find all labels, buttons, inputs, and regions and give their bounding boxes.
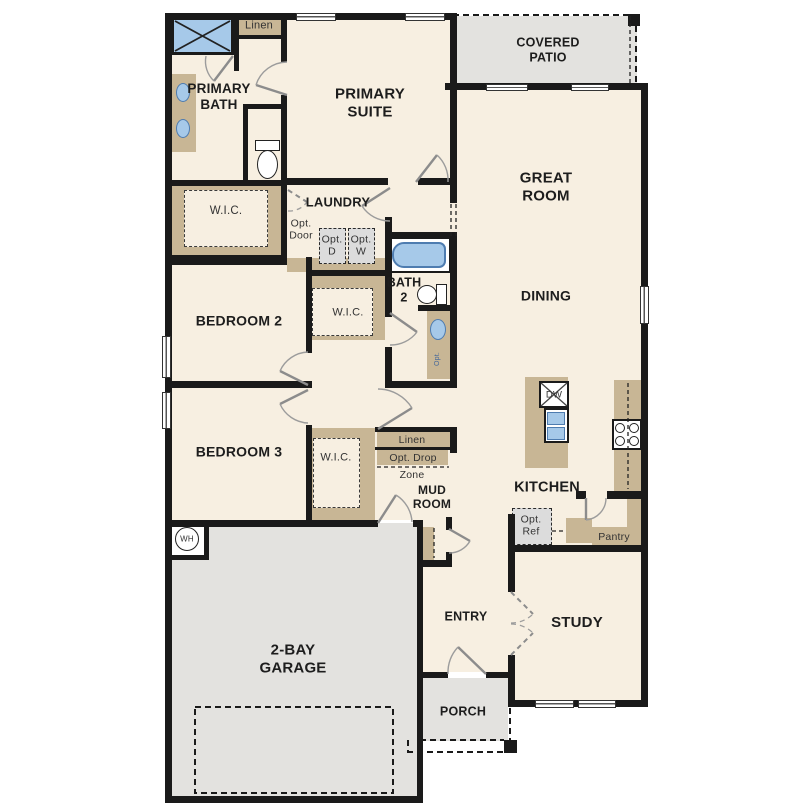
closet-label-wic-bedroom3: W.I.C.: [320, 452, 351, 465]
note-label-opt-ref: Opt. Ref: [521, 514, 542, 539]
room-label-kitchen: KITCHEN: [514, 479, 580, 496]
fixture-label-water-heater: WH: [180, 534, 194, 543]
note-label-zone: Zone: [400, 469, 425, 481]
room-label-entry: ENTRY: [445, 610, 488, 625]
room-label-covered-patio: COVERED PATIO: [516, 35, 579, 65]
closet-label-linen-upper: Linen: [245, 20, 273, 33]
room-label-garage: 2-BAY GARAGE: [259, 641, 326, 676]
room-label-study: STUDY: [551, 614, 603, 632]
room-label-mud-room: MUD ROOM: [413, 483, 451, 511]
note-label-opt-washer: Opt. W: [351, 234, 372, 259]
note-label-opt-vanity: Opt.: [434, 352, 442, 366]
closet-label-wic-bedroom2: W.I.C.: [332, 307, 363, 320]
room-label-dining: DINING: [521, 288, 571, 305]
room-label-great-room: GREAT ROOM: [520, 169, 572, 204]
note-label-opt-dryer: Opt. D: [322, 234, 343, 259]
fixture-label-dishwasher: DW: [546, 389, 562, 400]
room-label-bedroom-3: BEDROOM 3: [196, 444, 283, 461]
room-label-primary-bath: PRIMARY BATH: [187, 81, 250, 113]
floor-plan: Linen PRIMARY BATH PRIMARY SUITE COVERED…: [0, 0, 810, 810]
doors-and-dashes-overlay: [0, 0, 810, 810]
room-label-porch: PORCH: [440, 705, 486, 720]
room-label-bedroom-2: BEDROOM 2: [196, 313, 283, 330]
room-label-laundry: LAUNDRY: [306, 194, 370, 209]
closet-label-pantry: Pantry: [598, 531, 630, 543]
room-label-bath-2: BATH 2: [387, 275, 422, 305]
closet-label-wic-primary: W.I.C.: [210, 205, 243, 219]
closet-label-linen-lower: Linen: [399, 434, 426, 446]
room-label-primary-suite: PRIMARY SUITE: [335, 85, 405, 120]
note-label-opt-drop: Opt. Drop: [389, 452, 436, 464]
note-label-opt-door: Opt. Door: [289, 218, 313, 243]
